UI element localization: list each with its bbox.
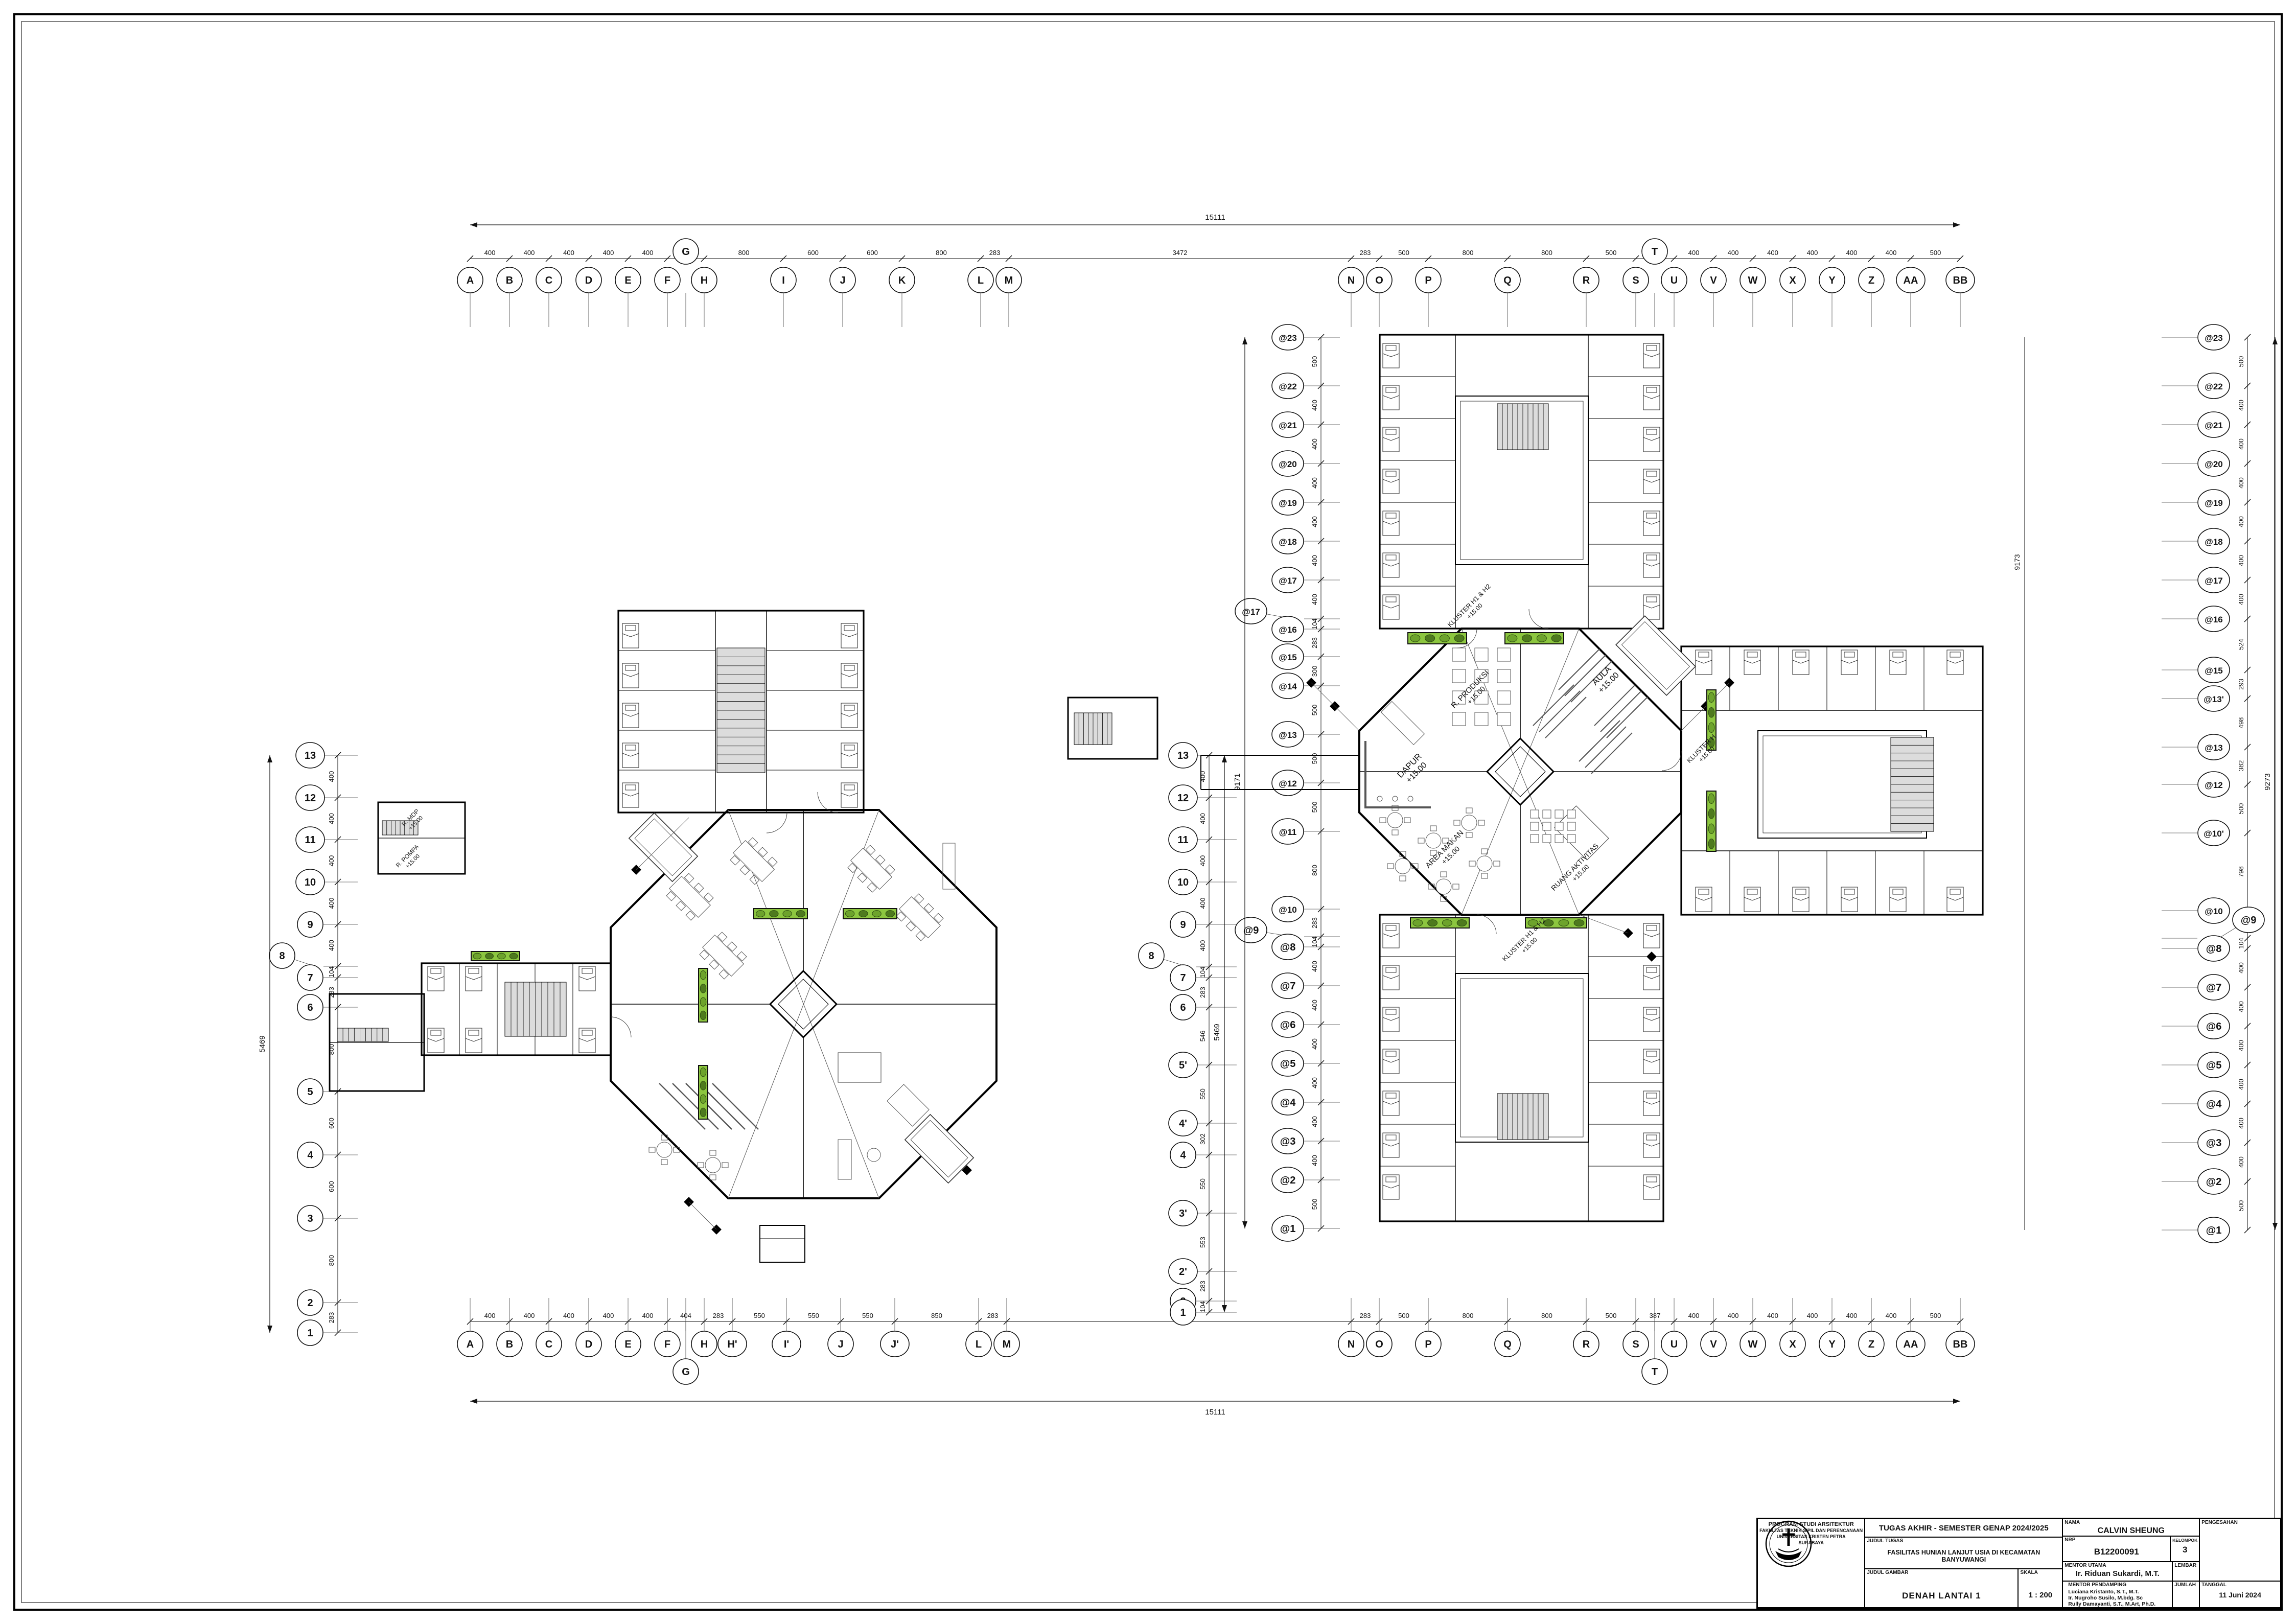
- skala-label: SKALA: [2019, 1569, 2062, 1576]
- grid-bubble-mid_col: 5': [1169, 1052, 1197, 1078]
- svg-text:400: 400: [1311, 516, 1318, 527]
- bed-icon: [1643, 427, 1660, 452]
- bed-icon: [1383, 1175, 1399, 1199]
- grid-bubble-bottom: J': [880, 1331, 909, 1357]
- svg-text:KLUSTER H1 & H2: KLUSTER H1 & H2: [1446, 583, 1492, 629]
- svg-text:E: E: [624, 1339, 631, 1350]
- svg-text:400: 400: [1311, 477, 1318, 489]
- bed-icon: [841, 743, 857, 768]
- nrp-value: B12200091: [2063, 1547, 2170, 1557]
- svg-text:AA: AA: [1904, 275, 1918, 286]
- grid-bubble-at_left: @9: [1235, 917, 1267, 943]
- svg-text:10: 10: [305, 877, 316, 888]
- svg-text:@11: @11: [1279, 827, 1297, 837]
- svg-text:400: 400: [2237, 516, 2245, 527]
- svg-text:9173: 9173: [2013, 554, 2021, 570]
- bed-icon: [1383, 553, 1399, 577]
- grid-bubble-bottom: J: [828, 1331, 853, 1357]
- svg-text:@21: @21: [1279, 421, 1297, 430]
- svg-text:T: T: [1652, 246, 1658, 258]
- svg-text:O: O: [1375, 1339, 1383, 1350]
- svg-text:@13: @13: [1279, 730, 1297, 740]
- svg-text:800: 800: [1463, 1312, 1474, 1319]
- grid-bubble-at_right: @4: [2198, 1091, 2230, 1117]
- svg-text:400: 400: [563, 249, 574, 257]
- svg-text:11: 11: [305, 834, 315, 846]
- grid-bubble-at_left: @23: [1272, 324, 1304, 350]
- grid-bubble-bottom: H: [691, 1331, 717, 1357]
- bed-icon: [1643, 385, 1660, 410]
- left-building: [330, 611, 996, 1262]
- floor-plan-svg: 4004004004004003738006006008002833472283…: [0, 0, 2296, 1624]
- grid-bubble-top: W: [1740, 267, 1766, 293]
- grid-bubble-bottom: T: [1642, 1359, 1667, 1384]
- grid-bubble-top: I: [771, 267, 796, 293]
- grid-bubble-top: S: [1623, 267, 1649, 293]
- grid-bubble-left_col: 2: [297, 1290, 323, 1315]
- bed-icon: [1841, 887, 1858, 912]
- grid-bubble-at_left: @20: [1272, 451, 1304, 476]
- svg-text:400: 400: [1311, 1116, 1318, 1127]
- grid-bubble-bottom: O: [1366, 1331, 1392, 1357]
- svg-text:10: 10: [1177, 877, 1189, 888]
- svg-text:302: 302: [1199, 1133, 1207, 1145]
- svg-text:4: 4: [1180, 1150, 1186, 1161]
- grid-bubble-top: Y: [1819, 267, 1845, 293]
- svg-text:400: 400: [603, 249, 614, 257]
- title-person-column: NAMA CALVIN SHEUNG NRP B12200091 KELOMPO…: [2063, 1519, 2200, 1607]
- svg-text:@20: @20: [2205, 459, 2223, 469]
- svg-text:550: 550: [754, 1312, 765, 1319]
- bed-icon: [1841, 650, 1858, 675]
- svg-text:S: S: [1632, 275, 1639, 286]
- mentor-utama-cell: MENTOR UTAMA Ir. Riduan Sukardi, M.T.: [2063, 1562, 2173, 1581]
- svg-text:400: 400: [2237, 438, 2245, 450]
- svg-text:524: 524: [2237, 639, 2245, 650]
- grid-bubble-at_right: @13: [2198, 734, 2230, 760]
- svg-text:400: 400: [328, 855, 335, 867]
- svg-text:400: 400: [1311, 594, 1318, 605]
- mentor-pendamping-name: Luciana Kristanto, S.T., M.T.: [2068, 1589, 2172, 1595]
- svg-text:L: L: [978, 275, 984, 286]
- svg-text:J': J': [891, 1339, 899, 1350]
- svg-text:800: 800: [738, 249, 750, 257]
- svg-text:283: 283: [1199, 1281, 1207, 1292]
- svg-text:B: B: [506, 275, 513, 286]
- nama-cell: NAMA CALVIN SHEUNG: [2063, 1519, 2199, 1537]
- svg-text:3: 3: [307, 1213, 313, 1224]
- svg-text:@20: @20: [1279, 459, 1297, 469]
- svg-text:800: 800: [328, 1044, 335, 1055]
- svg-text:O: O: [1375, 275, 1383, 286]
- kelompok-label: KELOMPOK: [2171, 1537, 2199, 1544]
- planter-bar: [754, 909, 807, 919]
- grid-bubble-top: T: [1642, 239, 1667, 264]
- svg-text:400: 400: [1688, 249, 1700, 257]
- svg-text:@23: @23: [1279, 333, 1297, 343]
- grid-bubble-bottom: A: [457, 1331, 483, 1357]
- svg-text:400: 400: [1311, 555, 1318, 566]
- grid-axis-bottom: 4004004004004004042835505505508502833472…: [457, 1298, 1975, 1417]
- svg-text:@3: @3: [2206, 1138, 2222, 1149]
- svg-text:Y: Y: [1828, 1339, 1836, 1350]
- judul-gambar-label: JUDUL GAMBAR: [1865, 1569, 2017, 1576]
- kelompok-value: 3: [2171, 1545, 2199, 1555]
- svg-text:400: 400: [2237, 555, 2245, 566]
- bed-icon: [1643, 469, 1660, 494]
- svg-text:550: 550: [1199, 1088, 1207, 1100]
- bed-icon: [1643, 1007, 1660, 1032]
- svg-text:500: 500: [1311, 356, 1318, 367]
- drawing-sheet: 4004004004004003738006006008002833472283…: [0, 0, 2296, 1624]
- sheet-border: [14, 14, 2282, 1610]
- svg-text:498: 498: [2237, 717, 2245, 729]
- grid-bubble-left_col: 10: [296, 869, 324, 895]
- svg-text:400: 400: [2237, 962, 2245, 973]
- grid-bubble-bottom: V: [1701, 1331, 1726, 1357]
- svg-text:D: D: [585, 1339, 592, 1350]
- grid-bubble-at_left: @7: [1272, 973, 1304, 999]
- svg-text:@10: @10: [2205, 907, 2223, 916]
- bed-icon: [841, 703, 857, 728]
- svg-text:Z: Z: [1868, 1339, 1874, 1350]
- grid-bubble-at_left: @22: [1272, 373, 1304, 399]
- svg-text:283: 283: [713, 1312, 724, 1319]
- bed-icon: [1383, 1133, 1399, 1157]
- bed-icon: [1696, 887, 1712, 912]
- grid-bubble-left_col: 8: [269, 943, 295, 968]
- svg-text:104: 104: [1199, 1301, 1207, 1312]
- grid-bubble-mid_col: 11: [1169, 827, 1197, 852]
- grid-bubble-top: C: [536, 267, 562, 293]
- svg-text:9: 9: [307, 919, 313, 931]
- svg-text:@17: @17: [2205, 576, 2223, 586]
- room-label-aula: AULA+15.00: [1589, 663, 1621, 695]
- svg-text:400: 400: [2237, 594, 2245, 605]
- svg-text:400: 400: [1199, 898, 1207, 909]
- grid-axis-mid_col: 4004004004004001042835465503025505532831…: [1139, 743, 1237, 1325]
- svg-text:F: F: [664, 275, 670, 286]
- bed-icon: [1643, 595, 1660, 619]
- mentor-pendamping-cell: MENTOR PENDAMPING Luciana Kristanto, S.T…: [2063, 1582, 2173, 1607]
- logo-cell: PROGRAM STUDI ARSITEKTUR FAKULTAS TEKNIK…: [1758, 1519, 1865, 1607]
- grid-bubble-left_col: 4: [297, 1142, 323, 1168]
- svg-text:400: 400: [1311, 1155, 1318, 1166]
- svg-text:@16: @16: [2205, 615, 2223, 624]
- grid-bubble-at_right: @12: [2198, 772, 2230, 797]
- svg-text:15111: 15111: [1205, 1408, 1225, 1417]
- svg-text:400: 400: [1767, 1312, 1778, 1319]
- grid-bubble-at_left: @6: [1272, 1012, 1304, 1037]
- svg-text:@9: @9: [2241, 915, 2257, 926]
- svg-text:BB: BB: [1953, 1339, 1968, 1350]
- grid-bubble-at_left: @10: [1272, 896, 1304, 922]
- grid-bubble-at_left: @2: [1272, 1167, 1304, 1193]
- svg-text:3472: 3472: [1173, 249, 1188, 257]
- svg-text:9273: 9273: [2263, 773, 2272, 790]
- svg-text:V: V: [1710, 275, 1717, 286]
- svg-text:546: 546: [1199, 1031, 1207, 1042]
- grid-bubble-mid_col: 4: [1170, 1142, 1196, 1168]
- lembar-label: LEMBAR: [2173, 1562, 2199, 1569]
- room-label-kluster-nw: KLUSTER H1 & H2+15.00: [1446, 583, 1498, 634]
- svg-text:400: 400: [2237, 1118, 2245, 1129]
- bed-icon: [1643, 511, 1660, 536]
- grid-bubble-bottom: D: [576, 1331, 601, 1357]
- svg-text:@22: @22: [2205, 382, 2223, 391]
- grid-axis-left_col: 4004004004004001042838006006008002831312…: [258, 743, 358, 1345]
- grid-bubble-at_right: @21: [2198, 412, 2230, 437]
- svg-text:400: 400: [1688, 1312, 1700, 1319]
- svg-text:S: S: [1632, 1339, 1639, 1350]
- svg-text:400: 400: [524, 249, 535, 257]
- planter-bar: [1408, 633, 1467, 644]
- svg-text:800: 800: [1541, 249, 1552, 257]
- svg-text:@1: @1: [2206, 1225, 2222, 1236]
- grid-bubble-at_left: @4: [1272, 1089, 1304, 1115]
- svg-text:@22: @22: [1279, 382, 1297, 391]
- svg-text:104: 104: [2237, 938, 2245, 949]
- bed-icon: [466, 1028, 482, 1053]
- nrp-cell: NRP B12200091: [2063, 1537, 2171, 1561]
- jumlah-cell: JUMLAH: [2173, 1582, 2199, 1607]
- svg-text:@17: @17: [1279, 576, 1297, 586]
- bed-icon: [1793, 887, 1809, 912]
- svg-text:283: 283: [328, 1312, 335, 1324]
- svg-text:104: 104: [1311, 618, 1318, 630]
- grid-bubble-at_left: @17: [1272, 567, 1304, 593]
- kelompok-cell: KELOMPOK 3: [2171, 1537, 2199, 1561]
- svg-text:T: T: [1652, 1366, 1658, 1378]
- svg-text:800: 800: [936, 249, 947, 257]
- svg-text:400: 400: [484, 1312, 496, 1319]
- svg-text:4': 4': [1179, 1118, 1187, 1129]
- svg-text:@2: @2: [2206, 1176, 2222, 1188]
- bed-icon: [1383, 595, 1399, 619]
- grid-bubble-bottom: B: [497, 1331, 522, 1357]
- grid-bubble-left_col: 11: [296, 827, 324, 852]
- room-label-pompa: R. POMPA+15.00: [395, 843, 426, 874]
- lembar-cell: LEMBAR: [2173, 1562, 2199, 1581]
- bed-icon: [1643, 1133, 1660, 1157]
- bed-icon: [622, 783, 639, 807]
- bed-icon: [1744, 650, 1760, 675]
- svg-text:800: 800: [1463, 249, 1474, 257]
- svg-text:500: 500: [2237, 356, 2245, 367]
- tanggal-value: 11 Juni 2024: [2200, 1591, 2280, 1599]
- grid-bubble-mid_col: 3': [1169, 1200, 1197, 1226]
- svg-text:1: 1: [307, 1328, 313, 1339]
- grid-bubble-at_left: @16: [1272, 616, 1304, 642]
- planter-bar: [471, 952, 520, 961]
- bed-icon: [1643, 1175, 1660, 1199]
- grid-bubble-bottom: H': [718, 1331, 747, 1357]
- grid-bubble-at_right: @19: [2198, 490, 2230, 515]
- svg-text:400: 400: [1311, 1077, 1318, 1088]
- svg-text:M: M: [1005, 275, 1013, 286]
- svg-text:Q: Q: [1503, 275, 1512, 286]
- grid-bubble-bottom: G: [673, 1359, 699, 1384]
- grid-bubble-top: B: [497, 267, 522, 293]
- grid-bubble-top: D: [576, 267, 601, 293]
- grid-bubble-bottom: S: [1623, 1331, 1649, 1357]
- grid-axis-at_right: 5004004004004004004005242934983825007982…: [2013, 324, 2278, 1243]
- grid-axis-top: 4004004004004003738006006008002833472283…: [457, 213, 1975, 327]
- svg-text:13: 13: [1177, 750, 1189, 761]
- svg-text:500: 500: [1311, 753, 1318, 764]
- grid-bubble-top: P: [1416, 267, 1441, 293]
- svg-text:400: 400: [1728, 1312, 1739, 1319]
- svg-text:AA: AA: [1904, 1339, 1918, 1350]
- svg-text:W: W: [1748, 275, 1758, 286]
- grid-bubble-at_right: @22: [2198, 373, 2230, 399]
- bed-icon: [1383, 1091, 1399, 1116]
- svg-text:A: A: [467, 1339, 474, 1350]
- svg-text:4: 4: [307, 1150, 313, 1161]
- grid-bubble-bottom: Z: [1859, 1331, 1884, 1357]
- svg-text:400: 400: [1728, 249, 1739, 257]
- grid-bubble-top: V: [1701, 267, 1726, 293]
- grid-bubble-left_col: 1: [297, 1320, 323, 1345]
- title-sign-column: PENGESAHAN TANGGAL 11 Juni 2024: [2200, 1519, 2280, 1607]
- svg-text:550: 550: [1199, 1178, 1207, 1190]
- svg-text:@1: @1: [1280, 1223, 1296, 1235]
- svg-text:J: J: [840, 275, 845, 286]
- bed-icon: [841, 783, 857, 807]
- grid-bubble-bottom: R: [1573, 1331, 1599, 1357]
- svg-text:@8: @8: [1280, 942, 1296, 953]
- svg-text:@19: @19: [1279, 498, 1297, 508]
- grid-bubble-top: AA: [1896, 267, 1925, 293]
- svg-text:550: 550: [862, 1312, 873, 1319]
- svg-text:I: I: [782, 275, 785, 286]
- svg-text:500: 500: [2237, 1200, 2245, 1212]
- svg-text:104: 104: [1311, 936, 1318, 947]
- svg-text:500: 500: [1930, 249, 1941, 257]
- grid-bubble-top: H: [691, 267, 717, 293]
- svg-text:400: 400: [1311, 1000, 1318, 1011]
- grid-bubble-top: Q: [1495, 267, 1520, 293]
- svg-text:11: 11: [1177, 834, 1188, 846]
- bed-icon: [622, 703, 639, 728]
- bed-icon: [579, 1028, 595, 1053]
- bed-icon: [1890, 887, 1906, 912]
- grid-axis-at_left: 5004004004004004004001042833005005005008…: [1233, 324, 1340, 1241]
- bed-icon: [579, 966, 595, 991]
- grid-bubble-at_left: @15: [1272, 644, 1304, 669]
- svg-text:@3: @3: [1280, 1136, 1296, 1147]
- mentor-pendamping-label: MENTOR PENDAMPING: [2068, 1582, 2172, 1589]
- svg-text:387: 387: [1650, 1312, 1661, 1319]
- grid-bubble-mid_col: 7: [1170, 965, 1196, 990]
- svg-text:@13: @13: [2205, 743, 2223, 753]
- grid-bubble-bottom: E: [615, 1331, 641, 1357]
- svg-text:L: L: [976, 1339, 982, 1350]
- svg-text:283: 283: [328, 987, 335, 998]
- svg-text:400: 400: [328, 813, 335, 824]
- grid-bubble-at_left: @8: [1272, 934, 1304, 960]
- svg-text:15111: 15111: [1205, 213, 1225, 222]
- svg-text:400: 400: [642, 1312, 654, 1319]
- judul-tugas-label: JUDUL TUGAS: [1865, 1538, 2062, 1545]
- svg-text:400: 400: [2237, 477, 2245, 489]
- svg-text:H: H: [701, 1339, 708, 1350]
- svg-text:@7: @7: [1280, 981, 1296, 992]
- svg-text:283: 283: [1199, 987, 1207, 998]
- svg-text:@4: @4: [1280, 1097, 1296, 1108]
- skala-cell: SKALA 1 : 200: [2019, 1569, 2062, 1607]
- svg-text:W: W: [1748, 1339, 1758, 1350]
- bed-icon: [1643, 1049, 1660, 1074]
- svg-text:KLUSTER H1 & H2: KLUSTER H1 & H2: [1501, 917, 1547, 963]
- grid-bubble-left_col: 9: [297, 912, 323, 937]
- mentor-pendamping-name: Ir. Nugroho Susilo, M.bdg. Sc: [2068, 1595, 2172, 1601]
- grid-bubble-at_right: @7: [2198, 975, 2230, 1000]
- svg-text:553: 553: [1199, 1237, 1207, 1248]
- grid-bubble-top: X: [1780, 267, 1805, 293]
- svg-text:5469: 5469: [258, 1035, 267, 1052]
- svg-text:400: 400: [1807, 1312, 1818, 1319]
- planter-bar: [699, 968, 708, 1022]
- planter-bar: [843, 909, 897, 919]
- svg-text:V: V: [1710, 1339, 1717, 1350]
- svg-text:400: 400: [2237, 1040, 2245, 1051]
- grid-bubble-at_right: @3: [2198, 1130, 2230, 1155]
- mentor-utama-label: MENTOR UTAMA: [2063, 1562, 2172, 1569]
- svg-text:500: 500: [1311, 705, 1318, 716]
- planter-bar: [1410, 918, 1469, 928]
- grid-bubble-mid_col: 8: [1139, 943, 1164, 968]
- bed-icon: [1696, 650, 1712, 675]
- svg-text:@6: @6: [1280, 1019, 1296, 1031]
- jumlah-label: JUMLAH: [2173, 1582, 2199, 1589]
- bed-icon: [841, 623, 857, 648]
- svg-text:H': H': [727, 1339, 737, 1350]
- bed-icon: [622, 623, 639, 648]
- grid-bubble-bottom: L: [966, 1331, 991, 1357]
- grid-bubble-mid_col: 9: [1170, 912, 1196, 937]
- svg-text:@18: @18: [1279, 537, 1297, 547]
- svg-text:400: 400: [328, 771, 335, 782]
- grid-bubble-top: O: [1366, 267, 1392, 293]
- svg-text:K: K: [898, 275, 906, 286]
- svg-text:400: 400: [328, 898, 335, 909]
- grid-bubble-bottom: I': [772, 1331, 801, 1357]
- svg-text:283: 283: [1360, 1312, 1371, 1319]
- grid-bubble-at_left: @14: [1272, 673, 1304, 699]
- bed-icon: [1383, 1049, 1399, 1074]
- svg-text:600: 600: [328, 1118, 335, 1129]
- grid-bubble-left_col: 13: [296, 743, 324, 768]
- svg-text:500: 500: [1606, 249, 1617, 257]
- grid-bubble-mid_col: 2': [1169, 1259, 1197, 1284]
- grid-bubble-top: J: [830, 267, 855, 293]
- tanggal-cell: TANGGAL 11 Juni 2024: [2200, 1582, 2280, 1607]
- bed-icon: [841, 663, 857, 688]
- svg-text:@15: @15: [2205, 666, 2223, 676]
- svg-text:12: 12: [305, 793, 316, 804]
- svg-text:798: 798: [2237, 866, 2245, 877]
- svg-text:500: 500: [2237, 803, 2245, 815]
- grid-bubble-at_left: @3: [1272, 1128, 1304, 1154]
- svg-text:7: 7: [1180, 972, 1186, 984]
- svg-text:@8: @8: [2206, 943, 2222, 955]
- svg-text:2: 2: [307, 1297, 313, 1309]
- bed-icon: [622, 663, 639, 688]
- svg-text:400: 400: [1846, 1312, 1858, 1319]
- svg-text:R: R: [1583, 1339, 1590, 1350]
- svg-text:283: 283: [1360, 249, 1371, 257]
